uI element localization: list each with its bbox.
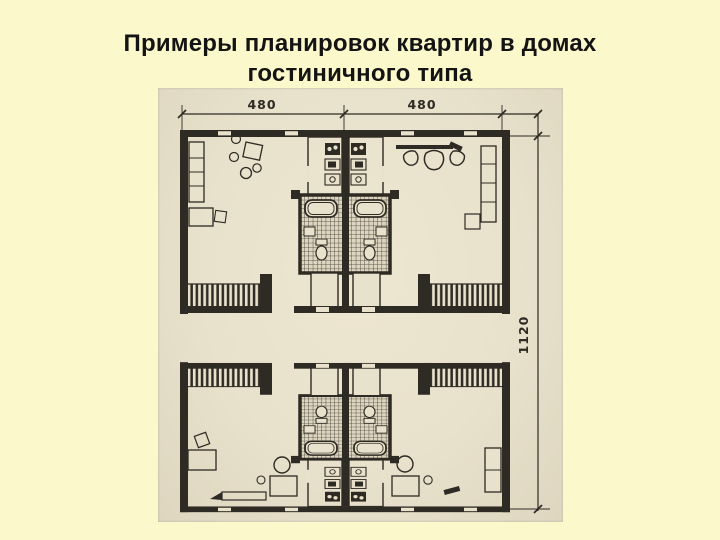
floor-plan-drawing: 480 480 1120 — [158, 88, 563, 522]
armchairs — [402, 149, 466, 170]
title-line-1: Примеры планировок квартир в домах — [124, 30, 597, 57]
floor-plan-figure: 480 480 1120 — [158, 88, 563, 522]
dimension-label-width-left: 480 — [247, 97, 276, 112]
slide-title: Примеры планировок квартир в домахгостин… — [0, 29, 720, 89]
title-line-2: гостиничного типа — [248, 60, 473, 87]
slide: Примеры планировок квартир в домахгостин… — [0, 0, 720, 540]
dimension-label-width-right: 480 — [407, 97, 436, 112]
dimension-label-height: 1120 — [516, 316, 531, 355]
lower-floor-plan — [180, 362, 510, 512]
